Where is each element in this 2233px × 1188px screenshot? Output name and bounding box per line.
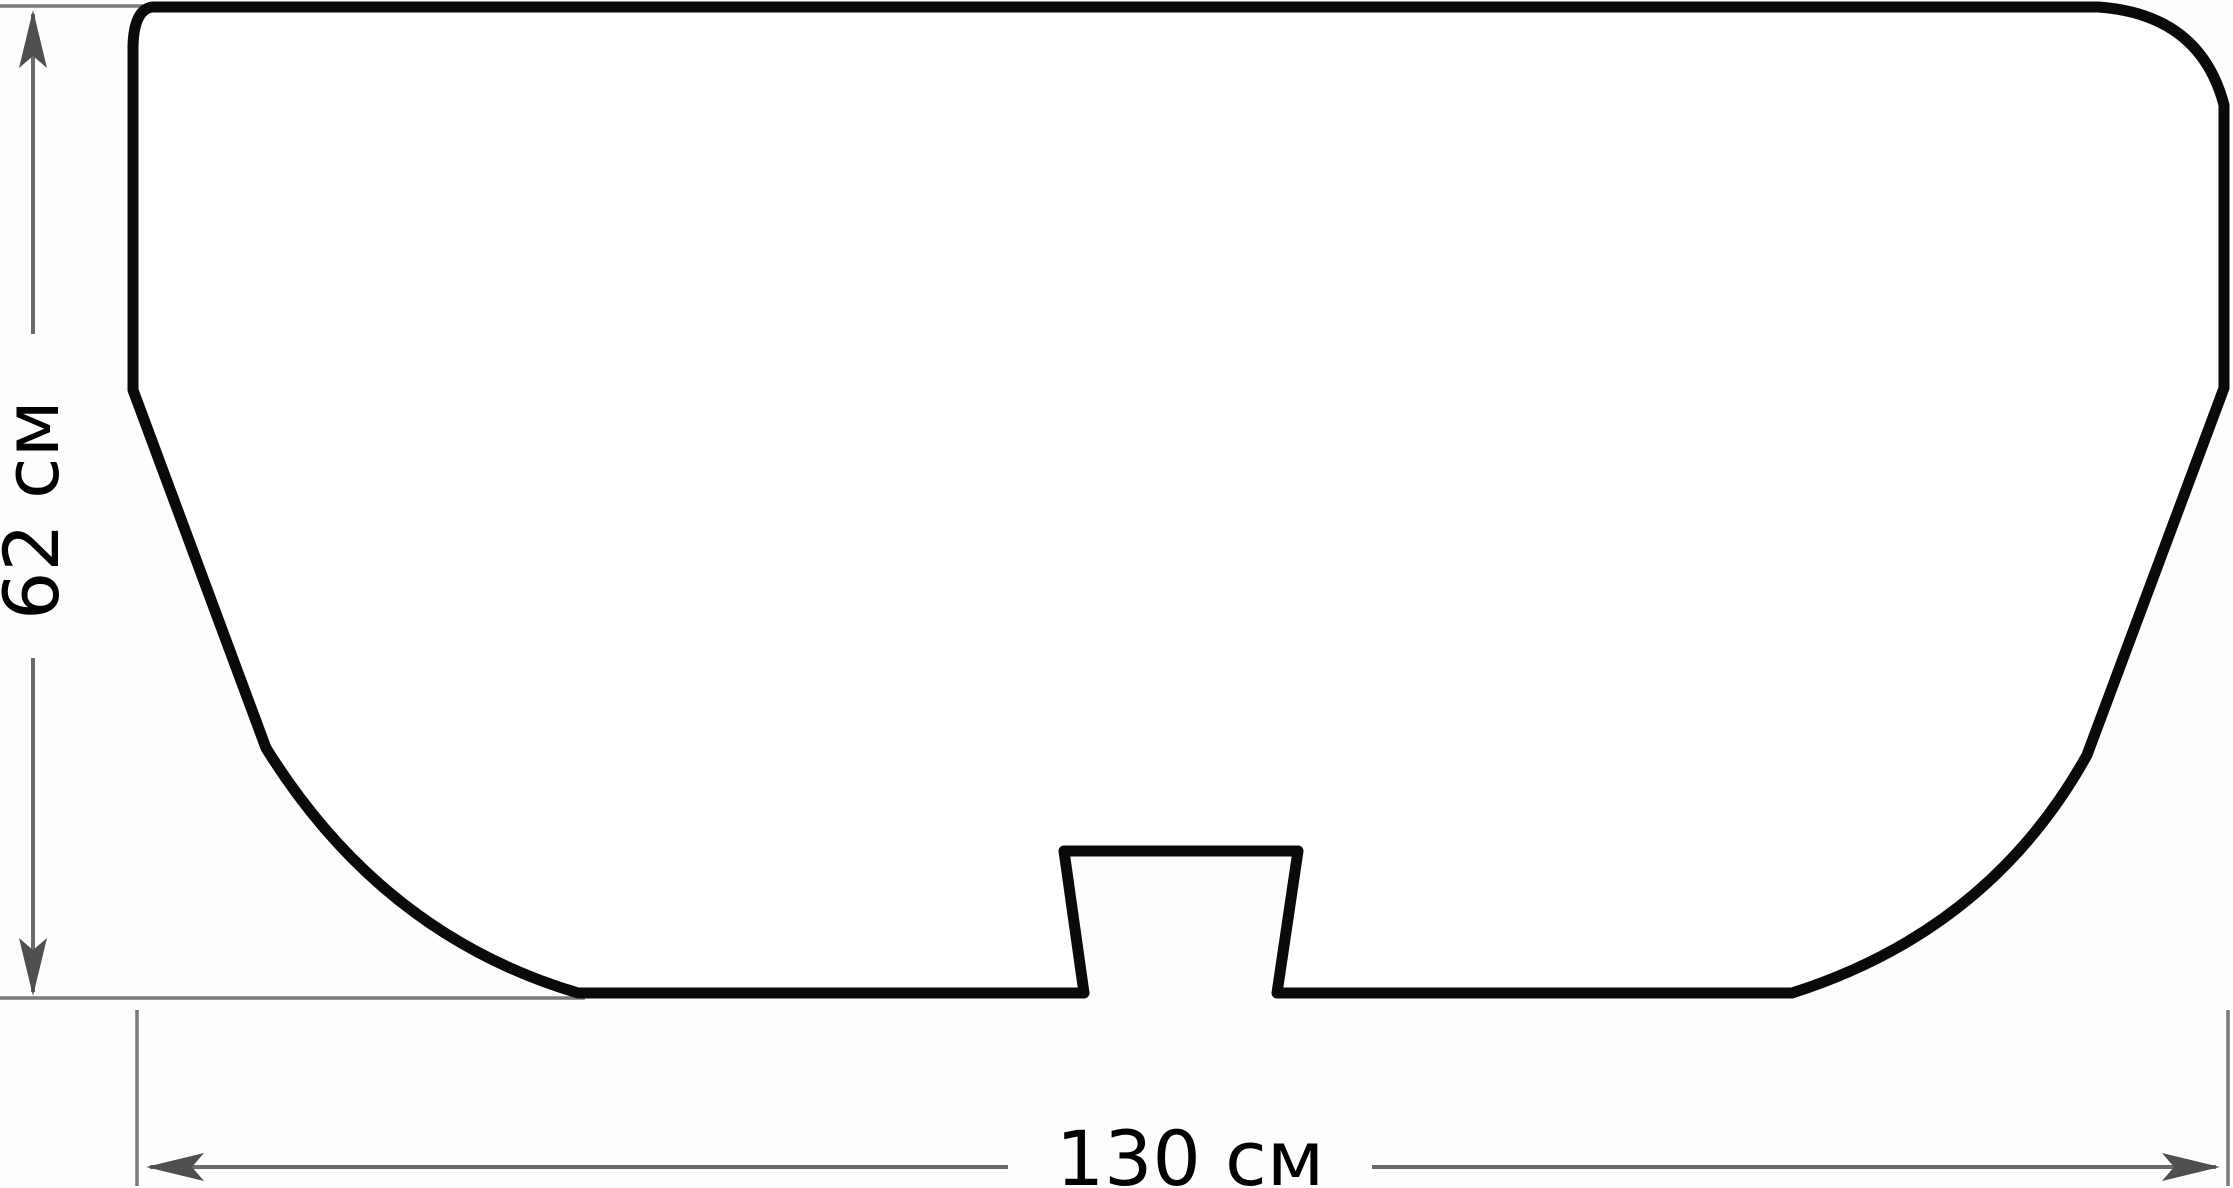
basin-outline — [133, 7, 2224, 993]
dimension-drawing: 62 см 130 см — [0, 0, 2233, 1188]
height-dimension-label: 62 см — [0, 400, 76, 620]
drawing-canvas: 62 см 130 см — [0, 0, 2233, 1188]
width-dimension-label: 130 см — [1056, 1114, 1324, 1188]
